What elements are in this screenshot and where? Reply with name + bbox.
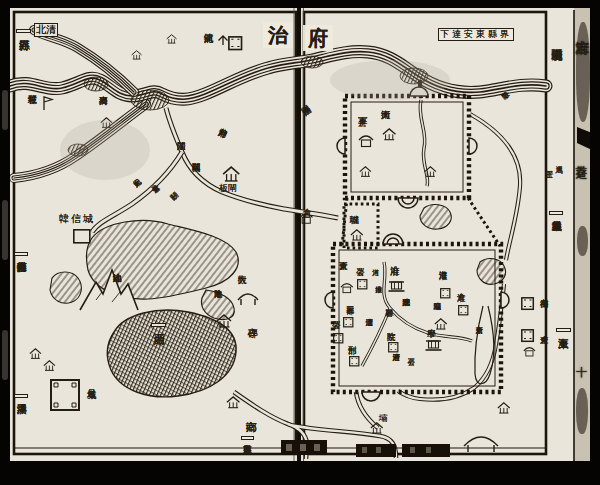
border-southwest-label: 洪澤湖界 — [14, 394, 28, 398]
volume-label: 卷之首 — [575, 156, 588, 216]
east-to-sea-label: 東至海 — [556, 328, 571, 332]
map-title: 府城全境山陽縣圖 — [551, 40, 563, 174]
hubu-fensi-label: 戶部分司 — [224, 121, 232, 125]
scanned-gazetteer-map-page: 府城全境山陽縣圖 淮安府志 卷之首 十 北清河縣界甘羅城惠濟祠河北鎮治府下達安東… — [0, 0, 600, 485]
seat-fu-label: 府 — [303, 25, 333, 51]
andong-border-label: 下達安東縣界 — [438, 28, 514, 41]
banzha-label: 板閘 — [219, 184, 237, 193]
hanxincheng-label: 韓信城 — [59, 214, 95, 224]
border-east-label: 東鹽城縣界 — [549, 211, 563, 215]
map-label-layer: 府城全境山陽縣圖 淮安府志 卷之首 十 北清河縣界甘羅城惠濟祠河北鎮治府下達安東… — [0, 0, 600, 485]
baoying-border-label: 寶應縣界 — [241, 436, 254, 440]
seat-zhi-label: 治 — [263, 22, 293, 48]
duntai-label: 墩臺 — [495, 86, 500, 91]
xihu-label: 西湖 — [151, 323, 166, 327]
book-title: 淮安府志 — [575, 30, 589, 122]
changyingcang-label: 常盈倉 — [146, 179, 152, 184]
chaoguan-label: 鈔關 — [165, 187, 171, 192]
border-west-label: 西清河縣牧界 — [14, 252, 28, 256]
border-north-label: 河縣界 — [16, 29, 31, 33]
tongjizha-label: 通濟閘 — [296, 99, 303, 104]
page-mark: 十 — [575, 358, 587, 378]
border-north-label-top: 北清 — [34, 23, 58, 37]
